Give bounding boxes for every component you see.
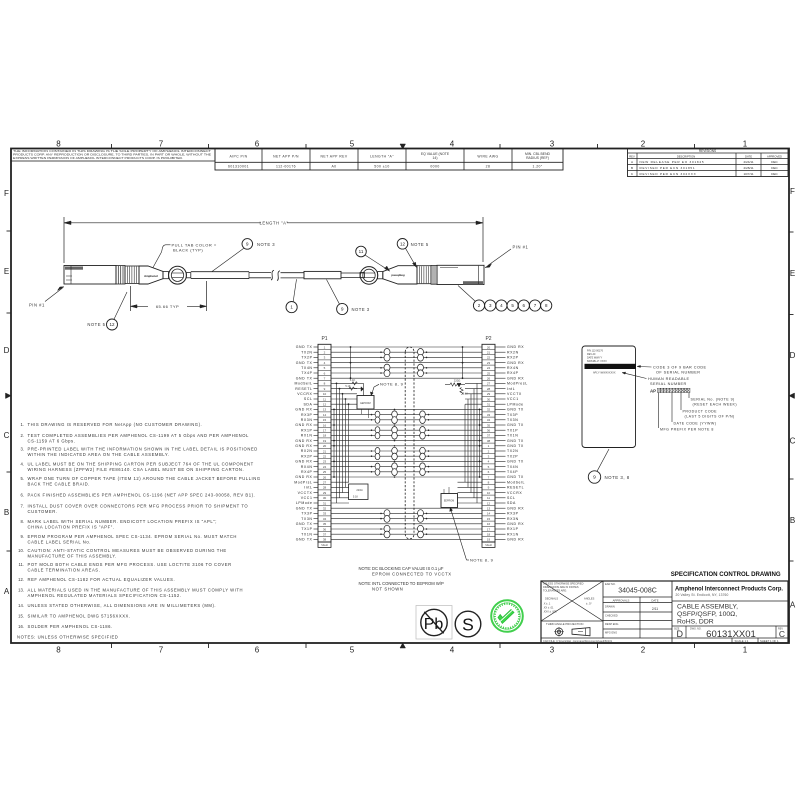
svg-text:RESETL: RESETL (507, 486, 524, 490)
svg-text:RX2P: RX2P (301, 454, 313, 458)
svg-text:APLYYWWXXXXXX: APLYYWWXXXXXX (593, 371, 616, 374)
svg-text:26: 26 (323, 475, 327, 479)
svg-text:EPROM CONNECTED TO VCCTX: EPROM CONNECTED TO VCCTX (372, 572, 452, 577)
svg-text:32: 32 (323, 507, 327, 511)
svg-text:SIMILAR TO AMPHENOL DWG 57156X: SIMILAR TO AMPHENOL DWG 57156XXXX. (28, 614, 131, 619)
svg-text:INSTALL DUST COVER OVER CONNEC: INSTALL DUST COVER OVER CONNECTORS PER M… (28, 504, 249, 509)
svg-text:RX4P: RX4P (301, 470, 313, 474)
svg-text:Shield: Shield (485, 545, 492, 547)
svg-text:17: 17 (487, 527, 491, 531)
svg-text:D: D (4, 346, 10, 355)
svg-text:12: 12 (109, 322, 115, 327)
svg-text:E: E (4, 267, 9, 276)
svg-text:GND RX: GND RX (507, 361, 524, 365)
svg-text:.X ± .1: .X ± .1 (543, 602, 551, 606)
svg-text:15.: 15. (18, 614, 24, 619)
svg-text:VCC1: VCC1 (507, 397, 519, 401)
svg-text:2/11: 2/11 (652, 607, 658, 611)
svg-text:35: 35 (323, 522, 327, 526)
svg-text:11: 11 (359, 249, 364, 254)
svg-text:5.: 5. (21, 476, 25, 481)
svg-text:TX2P: TX2P (507, 454, 518, 458)
svg-text:RX4N: RX4N (507, 366, 519, 370)
svg-text:C: C (790, 437, 796, 446)
svg-text:RX1P: RX1P (301, 428, 313, 432)
svg-text:RX3P: RX3P (507, 512, 519, 516)
svg-text:GND TX: GND TX (296, 522, 313, 526)
svg-text:GND RX: GND RX (295, 408, 312, 412)
svg-text:NOTE 3: NOTE 3 (352, 307, 370, 312)
svg-text:(LAST 5 DIGITS OF P/N): (LAST 5 DIGITS OF P/N) (685, 414, 735, 418)
svg-text:GND RX: GND RX (507, 345, 524, 349)
svg-text:A: A (4, 587, 10, 596)
svg-text:60061BL-P: XXXX: 60061BL-P: XXXX (587, 360, 607, 363)
svg-text:RX3N: RX3N (507, 517, 519, 521)
svg-text:GND RX: GND RX (295, 475, 312, 479)
svg-text:UL LABEL MUST BE ON THE SHIPPI: UL LABEL MUST BE ON THE SHIPPING CARTON … (28, 462, 254, 467)
svg-text:EPROM PROGRAM PER AMPHENOL SPE: EPROM PROGRAM PER AMPHENOL SPEC CS-1134.… (28, 534, 238, 539)
svg-text:20: 20 (487, 345, 491, 349)
svg-text:S: S (462, 615, 474, 635)
svg-text:SCALE 1:1: SCALE 1:1 (735, 639, 749, 643)
svg-text:TX2P: TX2P (301, 356, 312, 360)
svg-text:6: 6 (255, 140, 260, 149)
svg-text:NOTE 8, 9: NOTE 8, 9 (380, 382, 404, 387)
svg-text:GND TX: GND TX (507, 475, 524, 479)
svg-text:14: 14 (323, 413, 327, 417)
svg-text:NET APP P/N: NET APP P/N (273, 154, 299, 158)
svg-text:GND RX: GND RX (507, 522, 524, 526)
svg-text:4.: 4. (21, 462, 25, 467)
svg-text:GND RX: GND RX (507, 538, 524, 542)
svg-text:F: F (790, 187, 795, 196)
svg-text:500 ±10: 500 ±10 (374, 165, 389, 169)
svg-text:GND RX: GND RX (295, 444, 312, 448)
svg-text:NET APP REV: NET APP REV (320, 154, 347, 158)
svg-text:10: 10 (323, 392, 327, 396)
svg-text:GND TX: GND TX (507, 439, 524, 443)
svg-text:3: 3 (550, 645, 555, 654)
svg-text:28: 28 (323, 486, 327, 490)
svg-text:Amphenol Interconnect Products: Amphenol Interconnect Products Corp. (675, 585, 783, 592)
svg-text:ModPresL: ModPresL (507, 382, 528, 386)
svg-text:DESCRIPTION: DESCRIPTION (677, 155, 695, 159)
svg-text:65.66 TYP: 65.66 TYP (156, 304, 179, 309)
svg-text:RX3N: RX3N (301, 418, 313, 422)
svg-text:33: 33 (487, 413, 491, 417)
svg-text:DC BLOCKING CAP VALUE IS 0.1 μ: DC BLOCKING CAP VALUE IS 0.1 μF (372, 566, 444, 571)
svg-text:RX2P: RX2P (507, 356, 519, 360)
svg-text:24: 24 (323, 465, 327, 469)
svg-text:RX2N: RX2N (301, 449, 313, 453)
svg-text:5.1K: 5.1K (353, 495, 359, 499)
svg-text:IntL: IntL (507, 387, 515, 391)
svg-text:35: 35 (487, 423, 491, 427)
svg-text:WRAP ONE TURN OF COPPER TAPE (: WRAP ONE TURN OF COPPER TAPE (ITEM 12) A… (28, 476, 261, 481)
svg-text:NOTE 8, 9: NOTE 8, 9 (470, 558, 494, 563)
svg-text:CS-1159 AT 6 Gbps.: CS-1159 AT 6 Gbps. (28, 438, 76, 443)
svg-text:37: 37 (323, 533, 327, 537)
svg-text:SCL: SCL (507, 496, 516, 500)
svg-text:30: 30 (323, 496, 327, 500)
svg-text:1.20": 1.20" (532, 165, 542, 169)
svg-text:GND TX: GND TX (507, 423, 524, 427)
svg-text:RADIUS (REF): RADIUS (REF) (526, 156, 549, 160)
svg-text:NEW RELEASE PER EO 301845: NEW RELEASE PER EO 301845 (640, 160, 705, 164)
svg-text:Amphenol: Amphenol (391, 274, 405, 278)
svg-text:IntL: IntL (304, 486, 312, 490)
svg-text:9: 9 (593, 475, 596, 481)
svg-text:RESP ENG: RESP ENG (605, 622, 618, 626)
svg-text:Amphenol: Amphenol (144, 274, 158, 278)
svg-text:28: 28 (487, 387, 491, 391)
svg-text:ModSelL: ModSelL (507, 480, 525, 484)
svg-text:14): 14) (433, 156, 438, 160)
svg-text:MFG ENG: MFG ENG (605, 631, 617, 635)
svg-text:TX3P: TX3P (507, 413, 518, 417)
svg-text:TEST COMPLETED ASSEMBLIES PER: TEST COMPLETED ASSEMBLIES PER AMPHENOL C… (28, 433, 250, 438)
svg-text:CUSTOMER.: CUSTOMER. (28, 509, 58, 514)
svg-text:.XXX ± .005: .XXX ± .005 (543, 610, 557, 614)
svg-text:DIMENSIONS ARE IN INCHES: DIMENSIONS ARE IN INCHES (543, 585, 579, 589)
svg-text:TX1P: TX1P (301, 527, 312, 531)
svg-text:23: 23 (487, 361, 491, 365)
svg-text:NOTE 3: NOTE 3 (257, 242, 275, 247)
svg-text:PRODUCTS CORP. ANY REPRODUCTI: PRODUCTS CORP. ANY REPRODUCTION OR DISCL… (13, 152, 211, 156)
svg-text:16.: 16. (18, 624, 24, 629)
svg-text:1.: 1. (21, 422, 25, 427)
svg-text:2.: 2. (21, 433, 25, 438)
svg-text:AIPC P/N: AIPC P/N (229, 154, 247, 158)
svg-text:TX4N: TX4N (507, 465, 518, 469)
svg-text:GND RX: GND RX (295, 439, 312, 443)
svg-text:± .5°: ± .5° (586, 602, 592, 606)
svg-text:220Ω: 220Ω (356, 488, 362, 492)
svg-text:1: 1 (743, 645, 748, 654)
svg-text:CAUTION: ANTI-STATIC CONTROL: CAUTION: ANTI-STATIC CONTROL MEASURES MU… (28, 548, 227, 553)
svg-text:21: 21 (323, 449, 327, 453)
svg-text:EEPROM: EEPROM (360, 402, 370, 405)
svg-text:36: 36 (323, 527, 327, 531)
svg-text:20 Valley St. Endicott, NY, 13: 20 Valley St. Endicott, NY, 13760 (676, 593, 729, 597)
svg-text:WITHIN THE INDICATED AREA ON T: WITHIN THE INDICATED AREA ON THE CABLE A… (28, 452, 170, 457)
svg-text:2: 2 (641, 140, 646, 149)
svg-text:DATE: DATE (745, 155, 752, 159)
svg-text:DRAWN: DRAWN (605, 605, 615, 609)
svg-text:BLACK (TYP): BLACK (TYP) (173, 247, 203, 252)
svg-text:RX4N: RX4N (301, 465, 313, 469)
svg-text:TX4N: TX4N (301, 366, 312, 370)
svg-text:SCL: SCL (304, 397, 313, 401)
svg-text:VCCRX: VCCRX (507, 491, 522, 495)
svg-text:ModSelL: ModSelL (294, 382, 312, 386)
svg-text:VCCRX: VCCRX (297, 392, 312, 396)
svg-text:ANGLES: ANGLES (584, 597, 595, 601)
svg-text:C: C (779, 629, 785, 639)
svg-text:24: 24 (487, 366, 491, 370)
svg-text:5.1K: 5.1K (345, 385, 350, 388)
svg-text:PIN #1: PIN #1 (29, 303, 45, 308)
svg-text:38: 38 (487, 439, 491, 443)
svg-text:10/7/11: 10/7/11 (743, 172, 753, 176)
svg-text:DEC: DEC (771, 166, 778, 170)
svg-text:SPECIFICATION CONTROL DRAWING: SPECIFICATION CONTROL DRAWING (671, 571, 781, 578)
svg-text:GND TX: GND TX (296, 345, 313, 349)
svg-text:CABLE LABEL SERIAL No.: CABLE LABEL SERIAL No. (28, 539, 91, 544)
svg-text:C: C (4, 431, 10, 440)
svg-text:VCC1: VCC1 (301, 496, 313, 500)
svg-text:31: 31 (487, 403, 491, 407)
svg-text:0000: 0000 (430, 165, 439, 169)
svg-text:GND RX: GND RX (507, 376, 524, 380)
svg-text:17: 17 (323, 429, 327, 433)
svg-text:A: A (790, 601, 796, 610)
svg-text:UNLESS STATED OTHERWISE, ALL D: UNLESS STATED OTHERWISE, ALL DIMENSIONS … (28, 603, 217, 608)
svg-text:DEC: DEC (771, 172, 778, 176)
svg-text:27: 27 (487, 382, 491, 386)
svg-text:11: 11 (323, 397, 326, 401)
svg-text:(RESET EACH WEEK): (RESET EACH WEEK) (693, 403, 738, 407)
svg-text:A0: A0 (331, 165, 336, 169)
svg-text:NOTES: UNLESS OTHERWISE SPECIF: NOTES: UNLESS OTHERWISE SPECIFIED (17, 635, 118, 640)
svg-text:TX1N: TX1N (301, 532, 312, 536)
svg-text:RoHS, DDR: RoHS, DDR (677, 619, 714, 626)
svg-text:21: 21 (487, 351, 491, 355)
svg-text:RX4P: RX4P (507, 371, 519, 375)
svg-text:22: 22 (323, 455, 327, 459)
svg-text:5.1K: 5.1K (350, 378, 356, 382)
svg-text:27: 27 (323, 481, 327, 485)
svg-text:.XX ± .01: .XX ± .01 (543, 606, 554, 610)
svg-text:5: 5 (350, 645, 355, 654)
svg-text:19: 19 (487, 538, 491, 542)
svg-text:32: 32 (487, 408, 491, 412)
svg-text:P1: P1 (321, 336, 327, 342)
svg-text:14: 14 (487, 512, 491, 516)
svg-text:PRE-PRINTED LABEL WITH THE INF: PRE-PRINTED LABEL WITH THE INFORMATION S… (28, 447, 258, 452)
svg-text:TX1N: TX1N (507, 434, 518, 438)
svg-text:4: 4 (450, 140, 455, 149)
svg-text:10.: 10. (18, 548, 24, 553)
svg-text:CODE 3 OF 9 BAR CODE: CODE 3 OF 9 BAR CODE (653, 365, 707, 369)
svg-text:EAR NO.: EAR NO. (605, 582, 616, 586)
svg-text:12: 12 (487, 501, 491, 505)
svg-text:F: F (4, 189, 9, 198)
svg-text:2/28/11: 2/28/11 (743, 166, 753, 170)
svg-text:13: 13 (487, 507, 491, 511)
svg-text:23: 23 (323, 460, 327, 464)
svg-text:RX2N: RX2N (507, 350, 519, 354)
svg-text:36: 36 (487, 429, 491, 433)
svg-text:SDA: SDA (507, 501, 516, 505)
svg-text:THIRD ANGLE PROJECTION: THIRD ANGLE PROJECTION (546, 622, 583, 626)
svg-text:ModPrsL: ModPrsL (294, 480, 312, 484)
svg-text:DWG. NO.: DWG. NO. (690, 627, 702, 630)
svg-text:NOTE:: NOTE: (359, 566, 372, 571)
svg-text:LPMode: LPMode (507, 402, 524, 406)
svg-text:29: 29 (487, 392, 491, 396)
svg-text:13: 13 (323, 408, 327, 412)
svg-text:MARK LABEL WITH SERIAL NUMBER.: MARK LABEL WITH SERIAL NUMBER. ENDICOTT … (28, 519, 218, 524)
svg-text:14.: 14. (18, 603, 24, 608)
svg-text:29: 29 (323, 491, 327, 495)
svg-text:TX3N: TX3N (301, 517, 312, 521)
svg-text:Shield: Shield (321, 545, 328, 547)
svg-text:CABLE TERMINATION AREAS.: CABLE TERMINATION AREAS. (28, 567, 101, 572)
svg-text:GND TX: GND TX (296, 361, 313, 365)
svg-text:7.: 7. (21, 504, 25, 509)
svg-text:2: 2 (641, 645, 646, 654)
svg-text:SDA: SDA (304, 402, 313, 406)
svg-text:CAD FILE: C:\Users\dan_comman: CAD FILE: C:\Users\dan_commane\Documents… (543, 639, 613, 643)
svg-text:DECIMALS: DECIMALS (545, 597, 558, 601)
svg-text:GND RX: GND RX (295, 460, 312, 464)
svg-text:3: 3 (550, 140, 555, 149)
svg-text:9.: 9. (21, 534, 25, 539)
svg-text:112-00176: 112-00176 (276, 165, 296, 169)
svg-text:28: 28 (486, 165, 491, 169)
svg-text:6.: 6. (21, 493, 25, 498)
svg-text:GND TX: GND TX (507, 408, 524, 412)
svg-text:ALL MATERIALS USED IN THE MANU: ALL MATERIALS USED IN THE MANUFACTURE OF… (28, 588, 244, 593)
svg-text:QSFP/QSFP, 100Ω,: QSFP/QSFP, 100Ω, (677, 611, 737, 618)
svg-text:CABLE ASSEMBLY,: CABLE ASSEMBLY, (677, 604, 738, 611)
svg-text:GND RX: GND RX (295, 423, 312, 427)
svg-text:CHINA LOCATION PREFIX IS "APF": CHINA LOCATION PREFIX IS "APF". (28, 524, 115, 529)
svg-text:THIS DRAWING IS RESERVED FOR N: THIS DRAWING IS RESERVED FOR NetApp (NO … (28, 422, 203, 427)
svg-text:11: 11 (487, 496, 490, 500)
svg-text:VCCTX: VCCTX (298, 491, 313, 495)
svg-text:REVISIONS: REVISIONS (699, 149, 716, 153)
svg-text:25: 25 (487, 371, 491, 375)
svg-text:18: 18 (323, 434, 327, 438)
svg-text:26: 26 (487, 377, 491, 381)
svg-text:BACK THE CABLE BRAID.: BACK THE CABLE BRAID. (28, 481, 90, 486)
svg-text:NOTE 5: NOTE 5 (411, 242, 429, 247)
svg-text:TX3P: TX3P (301, 512, 312, 516)
svg-text:B: B (4, 508, 9, 517)
svg-text:DATE: DATE (651, 598, 658, 602)
svg-text:UNLESS OTHERWISE SPECIFIED: UNLESS OTHERWISE SPECIFIED (543, 581, 584, 585)
svg-text:GND TX: GND TX (296, 376, 313, 380)
svg-text:SERIAL NUMBER: SERIAL NUMBER (650, 382, 687, 386)
svg-text:REVISED PER ECN 302XXX: REVISED PER ECN 302XXX (640, 172, 697, 176)
svg-text:11.: 11. (18, 562, 24, 567)
svg-text:MANUFACTURE OF THIS ASSEMBLY.: MANUFACTURE OF THIS ASSEMBLY. (28, 553, 117, 558)
svg-text:RX3P: RX3P (301, 413, 313, 417)
svg-text:INTL CONNECTED TO EEPROM W/P: INTL CONNECTED TO EEPROM W/P (372, 581, 444, 586)
svg-text:601310001: 601310001 (228, 165, 249, 169)
svg-text:B: B (790, 516, 795, 525)
svg-text:37: 37 (487, 434, 491, 438)
svg-text:EEPROM: EEPROM (444, 500, 454, 503)
svg-text:PACK FINISHED ASSEMBLIES PER A: PACK FINISHED ASSEMBLIES PER AMPHENOL CS… (28, 493, 256, 498)
svg-text:7: 7 (159, 140, 164, 149)
svg-text:PRODUCT CODE: PRODUCT CODE (683, 409, 718, 413)
svg-text:8: 8 (56, 645, 61, 654)
svg-text:D: D (790, 351, 796, 360)
svg-text:TX3N: TX3N (507, 418, 518, 422)
svg-text:220Ω: 220Ω (454, 378, 461, 382)
svg-text:22: 22 (487, 356, 491, 360)
svg-text:8.: 8. (21, 519, 25, 524)
svg-text:VCCTX: VCCTX (507, 392, 522, 396)
svg-text:MFG PREFIX PER NOTE 8: MFG PREFIX PER NOTE 8 (660, 427, 714, 431)
svg-text:13.: 13. (18, 588, 24, 593)
svg-text:B: B (631, 166, 633, 170)
svg-text:15: 15 (487, 517, 491, 521)
svg-text:LENGTH "A": LENGTH "A" (260, 220, 289, 225)
svg-text:DEC: DEC (771, 160, 778, 164)
svg-text:16: 16 (323, 423, 327, 427)
svg-text:TX4P: TX4P (507, 470, 518, 474)
svg-text:34: 34 (323, 517, 327, 521)
svg-text:TX2N: TX2N (301, 350, 312, 354)
svg-text:TX2N: TX2N (507, 449, 518, 453)
svg-text:25: 25 (323, 470, 327, 474)
svg-text:2/24/11: 2/24/11 (743, 160, 753, 164)
svg-text:38: 38 (323, 538, 327, 542)
svg-text:GND TX: GND TX (507, 460, 524, 464)
svg-text:10: 10 (487, 491, 491, 495)
svg-text:LENGTH "A": LENGTH "A" (370, 154, 394, 158)
svg-text:NOTE 3, 8: NOTE 3, 8 (605, 475, 630, 480)
svg-text:NOTE:: NOTE: (359, 581, 372, 586)
svg-text:RESETL: RESETL (295, 387, 312, 391)
svg-text:GND TX: GND TX (296, 538, 313, 542)
svg-text:34045-008C: 34045-008C (618, 588, 657, 595)
svg-text:HUMAN READABLE: HUMAN READABLE (648, 377, 690, 381)
svg-text:PIN #1: PIN #1 (513, 244, 529, 249)
svg-text:GND RX: GND RX (507, 506, 524, 510)
svg-text:LPMode: LPMode (296, 501, 313, 505)
svg-text:RX1N: RX1N (507, 532, 519, 536)
svg-text:GND TX: GND TX (507, 444, 524, 448)
svg-text:RX1P: RX1P (507, 527, 519, 531)
svg-text:REV: REV (629, 155, 635, 159)
svg-text:OF SERIAL NUMBER: OF SERIAL NUMBER (656, 371, 700, 375)
svg-text:AMPHENOL REGULATED MATERIALS S: AMPHENOL REGULATED MATERIALS SPECIFICATI… (28, 593, 182, 598)
svg-text:15: 15 (323, 418, 327, 422)
svg-text:16: 16 (487, 522, 491, 526)
svg-text:4: 4 (450, 645, 455, 654)
svg-text:RX1N: RX1N (301, 434, 313, 438)
svg-text:6: 6 (255, 645, 260, 654)
svg-text:D: D (677, 629, 684, 639)
svg-text:60131XX01: 60131XX01 (706, 629, 756, 640)
svg-text:AP: AP (650, 388, 656, 393)
svg-text:E: E (790, 269, 795, 278)
svg-text:APPROVED: APPROVED (767, 155, 782, 159)
svg-text:5: 5 (350, 140, 355, 149)
svg-text:33: 33 (323, 512, 327, 516)
svg-text:5.1K: 5.1K (463, 393, 468, 396)
svg-text:8: 8 (56, 140, 61, 149)
svg-text:NOT SHOWN: NOT SHOWN (372, 587, 403, 592)
svg-text:TX4P: TX4P (301, 371, 312, 375)
svg-text:12: 12 (400, 241, 406, 246)
svg-text:APPROVALS: APPROVALS (613, 598, 630, 602)
svg-text:WIRE AWG: WIRE AWG (477, 154, 498, 158)
svg-text:3.: 3. (21, 447, 25, 452)
svg-text:P2: P2 (485, 336, 491, 342)
svg-text:DATE CODE (YYWW): DATE CODE (YYWW) (674, 421, 717, 425)
svg-text:19: 19 (323, 439, 327, 443)
svg-text:GND TX: GND TX (296, 506, 313, 510)
svg-text:31: 31 (323, 501, 327, 505)
svg-text:EXPRESS WRITTEN PERMISSION OF: EXPRESS WRITTEN PERMISSION OF AMPHENOL I… (13, 156, 183, 160)
svg-text:TOLERANCES ARE:: TOLERANCES ARE: (543, 588, 567, 592)
